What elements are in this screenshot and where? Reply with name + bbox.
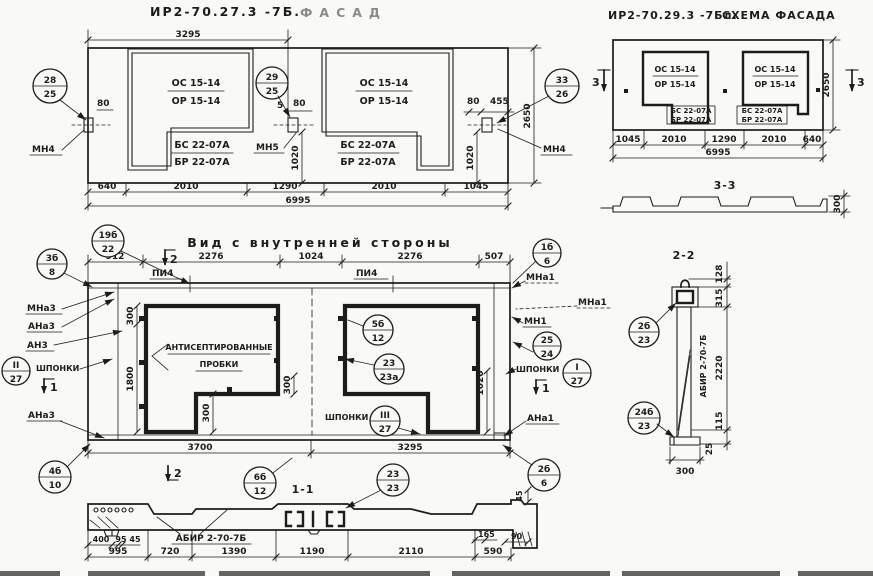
section-3-3-title: 3-3 (714, 179, 737, 192)
callout-top: 25 (541, 336, 554, 346)
facade-window-1 (128, 49, 253, 170)
dim-300-a: 300 (126, 307, 136, 326)
section-mark-2-top: 2 (162, 250, 179, 266)
dim-720: 720 (161, 547, 180, 557)
dim-300: 300 (833, 195, 843, 214)
callout-24b-23: 24б 23 (628, 402, 676, 439)
w1-mark-top: ОС 15-14 (172, 78, 221, 89)
embed-box (677, 291, 693, 303)
callout-25-24: 25 24 (512, 332, 561, 360)
label-mn4-left: МН4 (32, 145, 55, 155)
callout-bot: 27 (10, 375, 23, 385)
facade-anchors (72, 118, 506, 132)
callout-top: 28 (44, 76, 57, 86)
section-mark-1-left: 1 (41, 379, 59, 394)
label-mn4-right-leader (498, 129, 541, 148)
dim-2010-a: 2010 (173, 182, 198, 192)
label-shponki-mid: ШПОНКИ (325, 413, 368, 422)
panel-body (677, 307, 691, 437)
section-mark-3-left: 3 (592, 70, 610, 92)
section-1-label: 1 (50, 381, 59, 394)
callout-bot: 22 (102, 245, 115, 255)
callout-29-25: 29 25 (256, 67, 293, 119)
dim-128: 128 (715, 265, 725, 284)
dim-2276-b: 2276 (397, 252, 422, 262)
label-mna3: МНа3 (27, 304, 56, 314)
section-1-1-dims-bottom: 995 720 1390 1190 2110 590 (85, 530, 514, 561)
scheme-dim-height: 2650 (822, 37, 840, 133)
section-2-2: 2-2 128 315 2220 115 25 АБИР 2-70-7Б 300… (628, 249, 731, 477)
dim-80-mid: 80 (293, 99, 306, 109)
callout-top: I (575, 363, 578, 373)
dim-1045: 1045 (463, 182, 488, 192)
dim-1020-b: 1020 (466, 145, 476, 170)
sw1-sill-bot: БР 22-07А (671, 116, 712, 124)
w1-sill-top: БС 22-07А (174, 140, 230, 151)
callout-2b-23: 2б 23 (629, 301, 678, 347)
callout-I-27: I 27 (563, 359, 591, 387)
callout-top: II (13, 361, 20, 371)
arrowhead (113, 328, 123, 336)
label-an3: АН3 (27, 341, 48, 351)
dim-1390: 1390 (221, 547, 246, 557)
dim-300-c: 300 (283, 376, 293, 395)
callout-bot: 25 (44, 90, 57, 100)
label-shponki-left: ШПОНКИ (36, 364, 79, 373)
callout-6b-12: 6б 12 (244, 458, 292, 499)
callout-top: 4б (49, 466, 62, 477)
sw2-sill-top: БС 22-07А (742, 107, 783, 115)
dim-300-b: 300 (202, 404, 212, 423)
callout-top: 23 (383, 359, 396, 369)
dim-90: 90 (511, 532, 523, 541)
callout-bot: 6 (544, 257, 550, 267)
label-mn5: МН5 (256, 143, 279, 153)
facade-drawing: ИР2-70.27.3 -7Б. ФАСАД ОС 15-14 ОР 15-14… (30, 4, 579, 210)
callout-III-27: III 27 (370, 406, 421, 437)
dim-995: 995 (109, 547, 128, 557)
scheme-title-word: СХЕМА ФАСАДА (722, 9, 836, 22)
dim-2220: 2220 (715, 355, 725, 380)
sw2-mark-top: ОС 15-14 (754, 65, 795, 74)
label-mna1-b: МНа1 (578, 298, 607, 308)
callout-top: 29 (266, 73, 279, 83)
dim-45-small: 45 (129, 535, 141, 544)
dim-1190: 1190 (299, 547, 324, 557)
dim-1020-a: 1020 (291, 145, 301, 170)
dim-3700: 3700 (187, 443, 212, 453)
dim-2110: 2110 (398, 547, 423, 557)
facade-window-2 (322, 49, 453, 170)
label-mn1: МН1 (524, 317, 547, 327)
w2-mark-bot: ОР 15-14 (360, 96, 409, 107)
scheme-title-code: ИР2-70.29.3 -7Бл. (608, 9, 738, 22)
dim-640: 640 (98, 182, 117, 192)
callout-4b-10: 4б 10 (39, 442, 92, 493)
foot-block (670, 437, 700, 445)
callout-28-25: 28 25 (33, 69, 88, 122)
dim-1020: 1020 (476, 370, 486, 395)
dim-455: 455 (490, 97, 509, 107)
callout-top: 2б (638, 321, 651, 332)
dim-1290: 1290 (272, 182, 297, 192)
facade-title-code: ИР2-70.27.3 -7Б. (150, 4, 301, 19)
dim-315: 315 (715, 289, 725, 308)
callout-bot: 26 (556, 90, 569, 100)
dim-507: 507 (485, 252, 504, 262)
facade-dim-height: 2650 (508, 45, 541, 186)
sw1-mark-top: ОС 15-14 (654, 65, 695, 74)
arrowhead (105, 289, 115, 297)
sw1-sill-top: БС 22-07А (671, 107, 712, 115)
callout-bot: 23 (638, 336, 651, 346)
inner-dim-right-of-w1: 300 (283, 373, 297, 397)
arrowhead (103, 356, 113, 365)
callout-top: 33 (556, 76, 569, 86)
callout-bot: 6 (541, 479, 547, 489)
callout-bot: 8 (49, 268, 55, 278)
dim-2010-b: 2010 (761, 135, 786, 145)
section-2-label: 2 (174, 467, 183, 480)
callout-bot: 25 (266, 87, 279, 97)
callout-bot: 12 (254, 487, 267, 497)
section-3-3-dim: 300 (829, 190, 850, 218)
label-ana3-b: АНа3 (28, 411, 55, 421)
section-3-label: 3 (857, 76, 866, 89)
scheme-drawing: ИР2-70.29.3 -7Бл. СХЕМА ФАСАДА ОС 15-14 … (592, 9, 866, 162)
callout-23-23: 23 23 (345, 464, 409, 511)
callout-bot: 23а (380, 373, 399, 383)
dim-400: 400 (93, 535, 110, 544)
inner-dim-step: 300 (202, 391, 216, 435)
section-1-1-title: 1-1 (292, 483, 315, 496)
label-mna1-b-leader (516, 306, 577, 309)
callout-2b-6: 2б 6 (501, 443, 560, 491)
section-mark-1-right: 1 (533, 380, 551, 395)
dim-2650-scheme: 2650 (822, 72, 832, 97)
w2-sill-bot: БР 22-07А (340, 157, 396, 168)
blueprint-sheet: ИР2-70.27.3 -7Б. ФАСАД ОС 15-14 ОР 15-14… (0, 0, 873, 576)
inner-dims-bottom: 3700 3295 (85, 440, 513, 458)
section-1-1: 1-1 6б 12 23 23 2б 6 45 (85, 443, 560, 561)
inner-dims-top: 912 2276 1024 2276 507 (85, 252, 513, 283)
w2-sill-top: БС 22-07А (340, 140, 396, 151)
section-3-label: 3 (592, 76, 601, 89)
lifting-hook (681, 280, 689, 287)
callout-bot: 12 (372, 334, 385, 344)
dim-165: 165 (478, 530, 495, 539)
section-2-2-title: 2-2 (673, 249, 696, 262)
label-shponki-right: ШПОНКИ (516, 365, 559, 374)
corner-step (494, 433, 505, 440)
dim-1045: 1045 (615, 135, 640, 145)
facade-dims-bottom: 640 2010 1290 2010 1045 6995 (85, 182, 511, 210)
callout-top: 6б (254, 472, 267, 483)
label-abir-vert: АБИР 2-70-7Б (699, 335, 708, 398)
callout-bot: 23 (387, 484, 400, 494)
inner-window-1-frame (146, 306, 278, 432)
rib-section-marks (286, 512, 344, 526)
dim-2010-b: 2010 (371, 182, 396, 192)
w1-mark-bot: ОР 15-14 (172, 96, 221, 107)
label-mn4-right: МН4 (543, 145, 566, 155)
label-ana3-a: АНа3 (28, 322, 55, 332)
callout-top: 19б (99, 230, 118, 241)
callout-top: 2б (538, 464, 551, 475)
sw2-sill-bot: БР 22-07А (742, 116, 783, 124)
arrowhead (105, 296, 116, 305)
dim-115: 115 (715, 412, 725, 431)
callout-bot: 27 (379, 425, 392, 435)
w1-sill-bot: БР 22-07А (174, 157, 230, 168)
dim-25: 25 (705, 443, 715, 456)
dim-1800: 1800 (126, 366, 136, 391)
callout-top: III (380, 411, 390, 421)
callout-top: 3б (46, 253, 59, 264)
dim-80-right: 80 (467, 97, 480, 107)
plugs-note-line1: АНТИСЕПТИРОВАННЫЕ (165, 343, 272, 352)
dim-590: 590 (484, 547, 503, 557)
left-end-detail (90, 508, 133, 536)
callout-bot: 23 (638, 422, 651, 432)
scan-artifact (0, 571, 873, 576)
break-lines (678, 350, 690, 436)
sw2-mark-bot: ОР 15-14 (754, 80, 795, 89)
callout-top: 5б (372, 319, 385, 330)
dim-2276-a: 2276 (198, 252, 223, 262)
callout-II-27: II 27 (2, 357, 30, 385)
section-2-label: 2 (170, 253, 179, 266)
callout-23-23a: 23 23а (344, 354, 404, 384)
dim-640: 640 (803, 135, 822, 145)
callout-top: 24б (635, 407, 654, 418)
section-mark-3-right: 3 (846, 70, 866, 92)
label-pi4-b: ПИ4 (356, 269, 377, 279)
dim-6995-scheme: 6995 (705, 148, 730, 158)
callout-3b-8: 3б 8 (37, 249, 93, 290)
dim-95: 95 (115, 535, 127, 544)
dim-300-bottom: 300 (676, 467, 695, 477)
callout-top: 1б (541, 242, 554, 253)
callout-5b-12: 5б 12 (348, 315, 393, 345)
dim-3295: 3295 (175, 30, 200, 40)
dim-2010-a: 2010 (661, 135, 686, 145)
plugs-note-line2: ПРОБКИ (200, 360, 239, 369)
inner-view-title: Вид с внутренней стороны (187, 235, 452, 250)
section-3-3-profile (601, 197, 827, 212)
label-abir: АБИР 2-70-7Б (176, 534, 247, 544)
facade-title-word: ФАСАД (300, 5, 387, 20)
dim-1024: 1024 (298, 252, 323, 262)
dim-6995-facade: 6995 (285, 196, 310, 206)
scheme-dims-bottom: 1045 2010 1290 2010 640 6995 (610, 130, 826, 162)
label-ana1: АНа1 (527, 414, 554, 424)
callout-top: 23 (387, 470, 400, 480)
dim-80-left: 80 (97, 99, 110, 109)
callout-bot: 24 (541, 350, 554, 360)
arrowhead (511, 281, 522, 291)
inner-view: Вид с внутренней стороны АНТИСЕПТИРОВАНН… (2, 225, 613, 493)
arrowhead (511, 314, 522, 324)
label-mna1-a: МНа1 (526, 273, 555, 283)
section-1-label: 1 (542, 382, 551, 395)
dim-1290: 1290 (711, 135, 736, 145)
w2-mark-top: ОС 15-14 (360, 78, 409, 89)
inner-dim-left: 300 1800 (126, 303, 140, 435)
sw1-mark-bot: ОР 15-14 (654, 80, 695, 89)
callout-bot: 10 (49, 481, 62, 491)
dim-3295: 3295 (397, 443, 422, 453)
dim-5-mid: 5 (277, 101, 283, 111)
section-3-3: 3-3 300 (601, 179, 850, 218)
section-mark-2-bottom: 2 (165, 466, 183, 482)
callout-bot: 27 (571, 377, 584, 387)
label-mn4-left-leader (62, 130, 84, 150)
